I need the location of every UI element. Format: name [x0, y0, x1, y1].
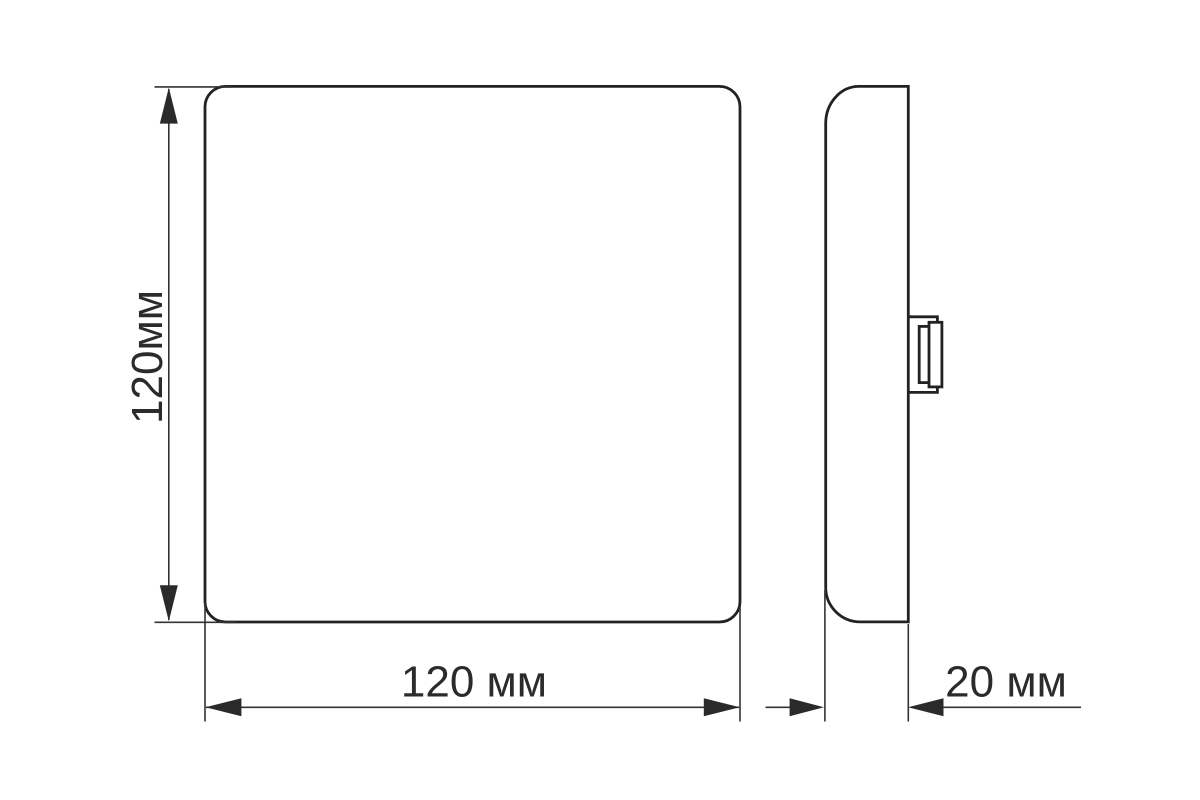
svg-text:120 мм: 120 мм: [401, 657, 547, 706]
svg-text:20 мм: 20 мм: [945, 657, 1067, 706]
svg-text:120мм: 120мм: [123, 290, 172, 424]
